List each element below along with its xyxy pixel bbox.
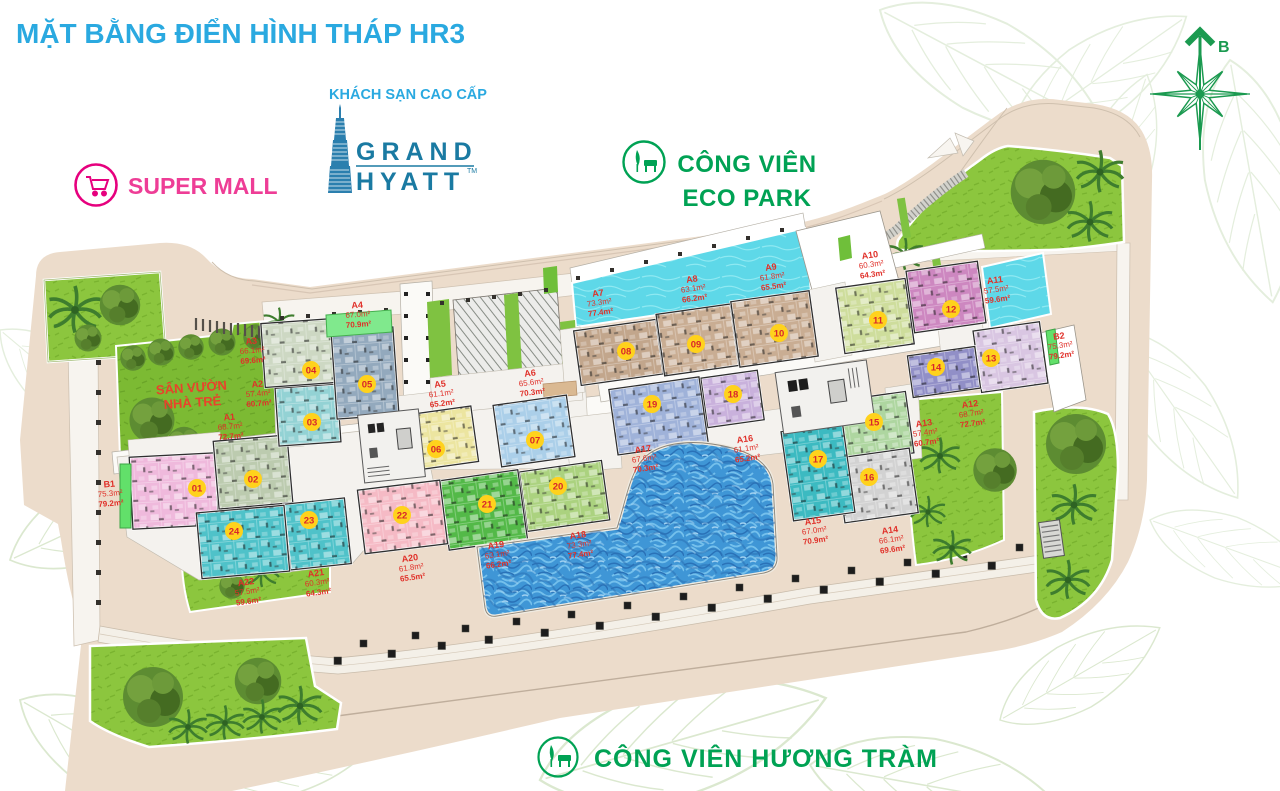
svg-text:18: 18 bbox=[728, 390, 739, 401]
svg-text:67.0m²: 67.0m² bbox=[345, 309, 371, 320]
svg-text:02: 02 bbox=[248, 475, 259, 486]
svg-text:19: 19 bbox=[647, 400, 658, 411]
svg-text:TM: TM bbox=[467, 168, 477, 175]
svg-text:08: 08 bbox=[621, 347, 632, 358]
svg-text:HYATT: HYATT bbox=[356, 168, 465, 196]
svg-text:09: 09 bbox=[691, 340, 702, 351]
svg-text:70.9m²: 70.9m² bbox=[346, 319, 372, 330]
svg-text:CÔNG VIÊN HƯƠNG TRÀM: CÔNG VIÊN HƯƠNG TRÀM bbox=[594, 743, 938, 773]
svg-text:ECO PARK: ECO PARK bbox=[683, 185, 812, 212]
svg-text:05: 05 bbox=[362, 380, 373, 391]
svg-text:15: 15 bbox=[869, 418, 880, 429]
svg-text:01: 01 bbox=[192, 484, 203, 495]
svg-text:KHÁCH SẠN CAO CẤP: KHÁCH SẠN CAO CẤP bbox=[329, 86, 487, 103]
svg-text:22: 22 bbox=[397, 511, 408, 522]
svg-text:06: 06 bbox=[431, 445, 442, 456]
svg-text:04: 04 bbox=[306, 366, 317, 377]
svg-text:GRAND: GRAND bbox=[356, 138, 478, 166]
svg-text:B: B bbox=[1218, 39, 1230, 56]
svg-text:03: 03 bbox=[307, 418, 318, 429]
svg-text:CÔNG VIÊN: CÔNG VIÊN bbox=[677, 150, 816, 178]
svg-text:11: 11 bbox=[873, 316, 884, 327]
svg-text:14: 14 bbox=[931, 363, 942, 374]
svg-text:17: 17 bbox=[813, 455, 824, 466]
svg-text:21: 21 bbox=[482, 500, 493, 511]
svg-text:16: 16 bbox=[864, 473, 875, 484]
svg-text:SUPER MALL: SUPER MALL bbox=[128, 173, 278, 199]
svg-text:12: 12 bbox=[946, 305, 957, 316]
svg-text:13: 13 bbox=[986, 354, 997, 365]
svg-text:24: 24 bbox=[229, 527, 240, 538]
svg-text:MẶT BẰNG ĐIỂN HÌNH THÁP HR3: MẶT BẰNG ĐIỂN HÌNH THÁP HR3 bbox=[16, 18, 465, 49]
svg-text:23: 23 bbox=[304, 516, 315, 527]
svg-text:07: 07 bbox=[530, 436, 541, 447]
svg-text:10: 10 bbox=[774, 329, 785, 340]
svg-text:20: 20 bbox=[553, 482, 564, 493]
